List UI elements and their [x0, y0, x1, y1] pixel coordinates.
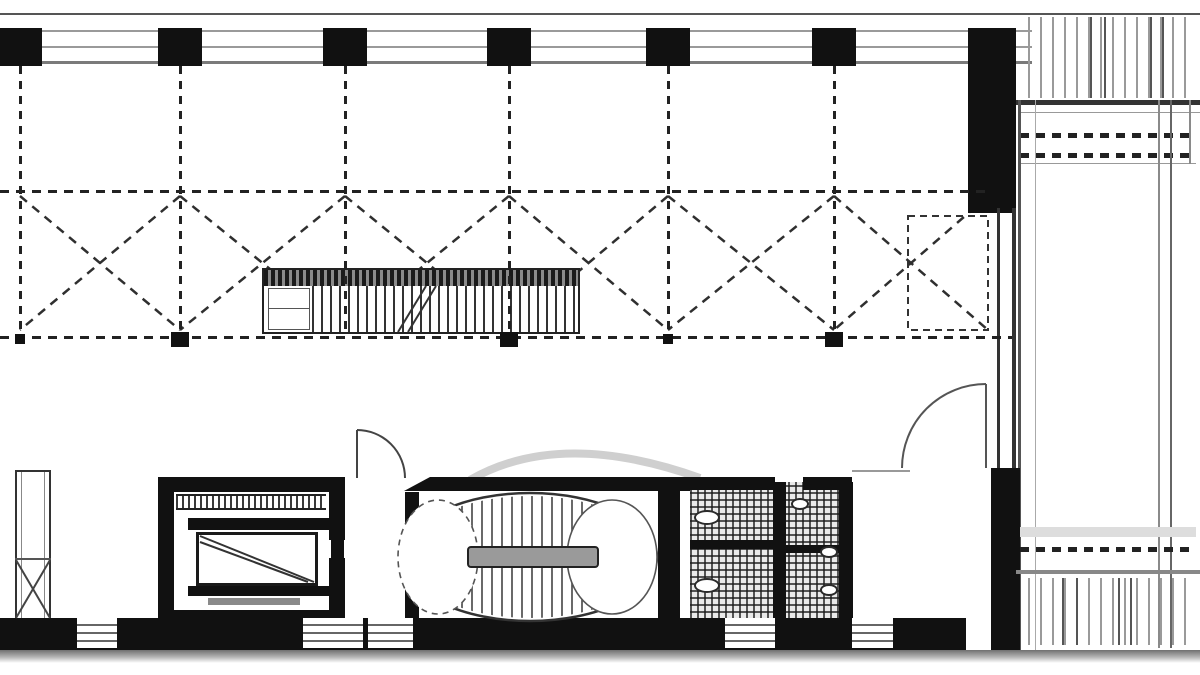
east-room-door-swing-arc — [902, 384, 986, 468]
doors-and-oval-stair-layer — [0, 0, 1200, 675]
oval-stair-left-lobe — [398, 500, 478, 614]
vestibule-door-swing-arc — [357, 430, 405, 478]
elevator-cab-diagonal — [200, 542, 308, 582]
floor-plan-canvas — [0, 0, 1200, 675]
oval-stair-landing-bar — [468, 547, 598, 567]
elevator-cab-diagonal — [200, 536, 314, 582]
